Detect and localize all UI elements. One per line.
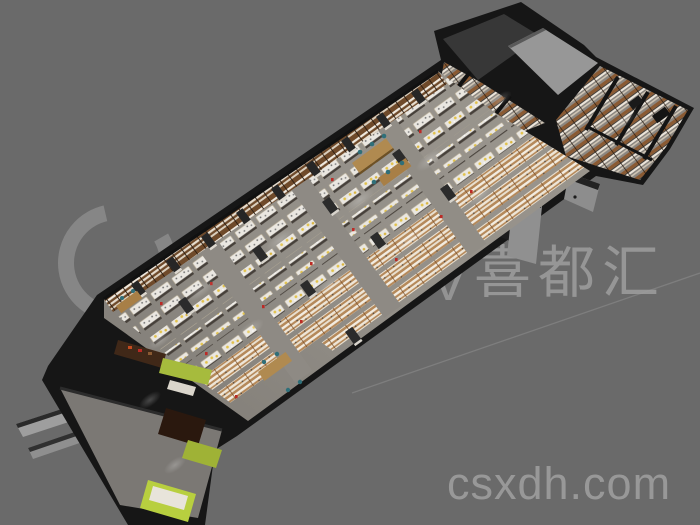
watermark-website: csxdh.com bbox=[447, 458, 671, 509]
watermark-brand: 喜都汇 bbox=[474, 241, 666, 305]
render-canvas: V 喜都汇 bbox=[0, 0, 700, 525]
store-floorplan-render: V 喜都汇 bbox=[0, 0, 700, 525]
